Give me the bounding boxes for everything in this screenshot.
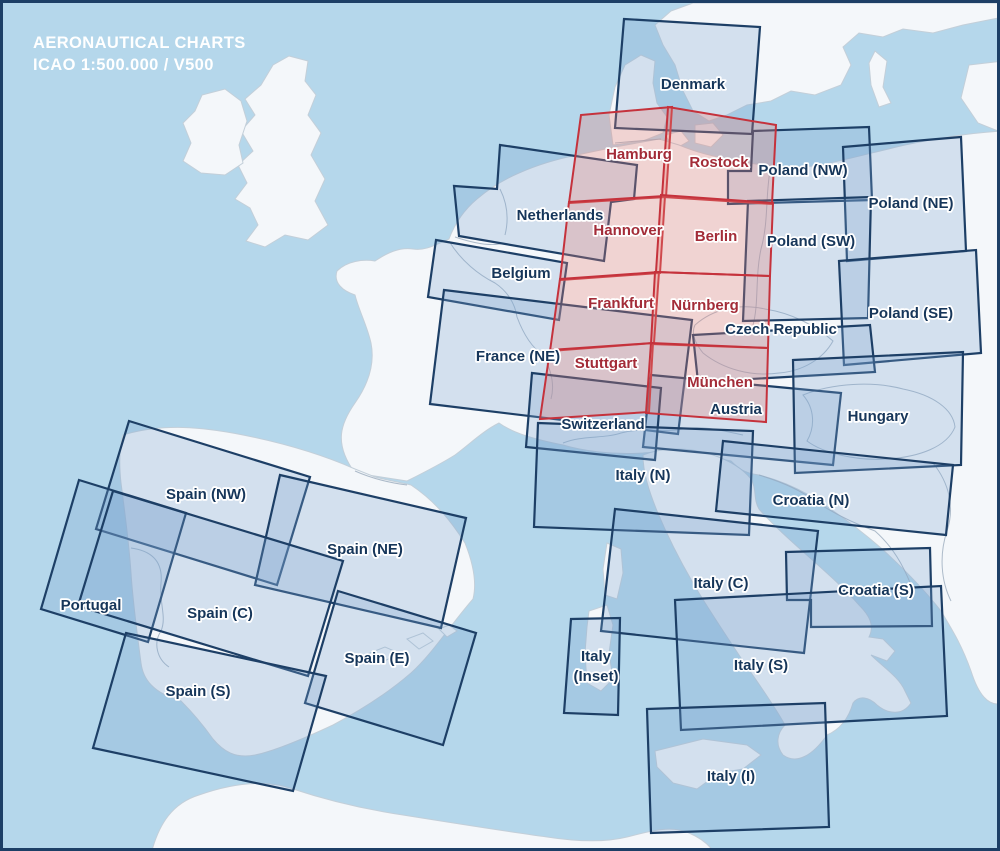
chart-label-belgium: Belgium bbox=[491, 265, 550, 282]
chart-label-spain-s: Spain (S) bbox=[165, 683, 230, 700]
chart-label-spain-c: Spain (C) bbox=[187, 605, 253, 622]
chart-label-czech-republic: Czech Republic bbox=[725, 321, 837, 338]
chart-label-berlin: Berlin bbox=[695, 228, 738, 245]
chart-label-austria: Austria bbox=[710, 401, 762, 418]
chart-label-poland-nw: Poland (NW) bbox=[758, 162, 847, 179]
chart-label-poland-sw: Poland (SW) bbox=[767, 233, 855, 250]
chart-label-croatia-s: Croatia (S) bbox=[838, 582, 914, 599]
chart-label-italy-n: Italy (N) bbox=[615, 467, 670, 484]
chart-label-stuttgart: Stuttgart bbox=[575, 355, 638, 372]
chart-label-poland-ne: Poland (NE) bbox=[869, 195, 954, 212]
chart-label-croatia-n: Croatia (N) bbox=[773, 492, 850, 509]
chart-label-hungary: Hungary bbox=[848, 408, 910, 425]
chart-label-portugal: Portugal bbox=[61, 597, 122, 614]
chart-label-m-nchen: München bbox=[687, 374, 753, 391]
chart-label-frankfurt: Frankfurt bbox=[588, 295, 654, 312]
europe-map-canvas: DenmarkHamburgRostockPoland (NW)Poland (… bbox=[3, 3, 1000, 851]
chart-label-netherlands: Netherlands bbox=[517, 207, 604, 224]
chart-label-spain-nw: Spain (NW) bbox=[166, 486, 246, 503]
chart-label-hamburg: Hamburg bbox=[606, 146, 672, 163]
chart-index-map: DenmarkHamburgRostockPoland (NW)Poland (… bbox=[0, 0, 1000, 851]
chart-label-italy-c: Italy (C) bbox=[693, 575, 748, 592]
chart-label-n-rnberg: Nürnberg bbox=[671, 297, 739, 314]
chart-label-france-ne: France (NE) bbox=[476, 348, 560, 365]
chart-label-italy-i: Italy (I) bbox=[707, 768, 755, 785]
chart-label-switzerland: Switzerland bbox=[561, 416, 644, 433]
chart-label-italy-s: Italy (S) bbox=[734, 657, 788, 674]
title-line-2: ICAO 1:500.000 / V500 bbox=[33, 56, 214, 74]
chart-label-hannover: Hannover bbox=[593, 222, 662, 239]
title-line-1: AERONAUTICAL CHARTS bbox=[33, 34, 246, 52]
chart-label-denmark: Denmark bbox=[661, 76, 726, 93]
chart-label-poland-se: Poland (SE) bbox=[869, 305, 953, 322]
chart-region-italy-inset bbox=[564, 618, 620, 715]
chart-label-rostock: Rostock bbox=[689, 154, 749, 171]
chart-label-spain-e: Spain (E) bbox=[344, 650, 409, 667]
chart-label-spain-ne: Spain (NE) bbox=[327, 541, 403, 558]
